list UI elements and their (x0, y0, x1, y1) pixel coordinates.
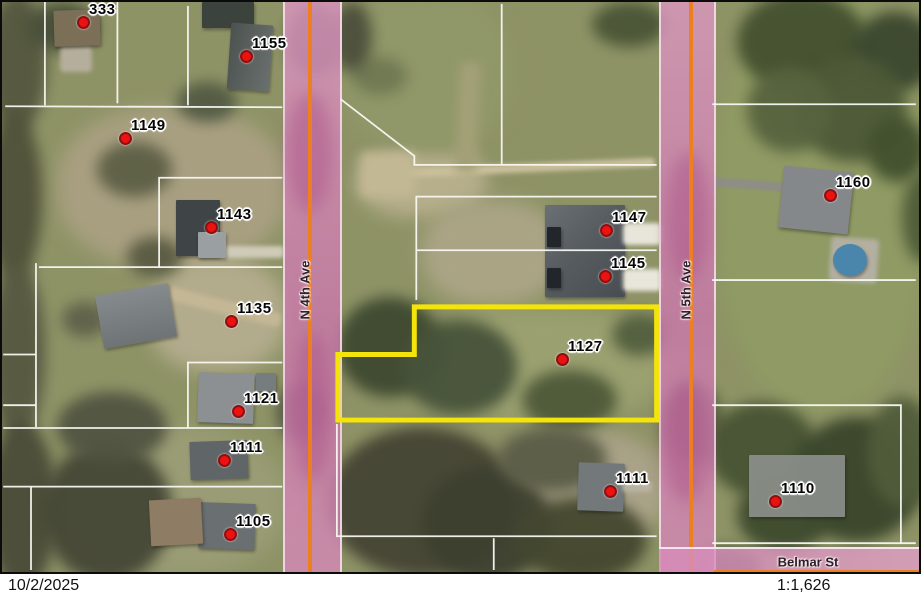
street-label-n5th: N 5th Ave (679, 261, 694, 320)
highlighted-parcel-outline[interactable] (338, 307, 657, 420)
street-label-belmar: Belmar St (778, 555, 839, 570)
map-export-page: N 4th Ave N 5th Ave Belmar St 333 1155 1… (0, 0, 921, 600)
map-scale: 1:1,626 (777, 577, 830, 595)
map-canvas[interactable]: N 4th Ave N 5th Ave Belmar St 333 1155 1… (0, 0, 921, 574)
status-bar: 10/2/2025 1:1,626 (0, 574, 921, 600)
street-label-n4th: N 4th Ave (298, 261, 313, 320)
map-date: 10/2/2025 (8, 577, 79, 595)
